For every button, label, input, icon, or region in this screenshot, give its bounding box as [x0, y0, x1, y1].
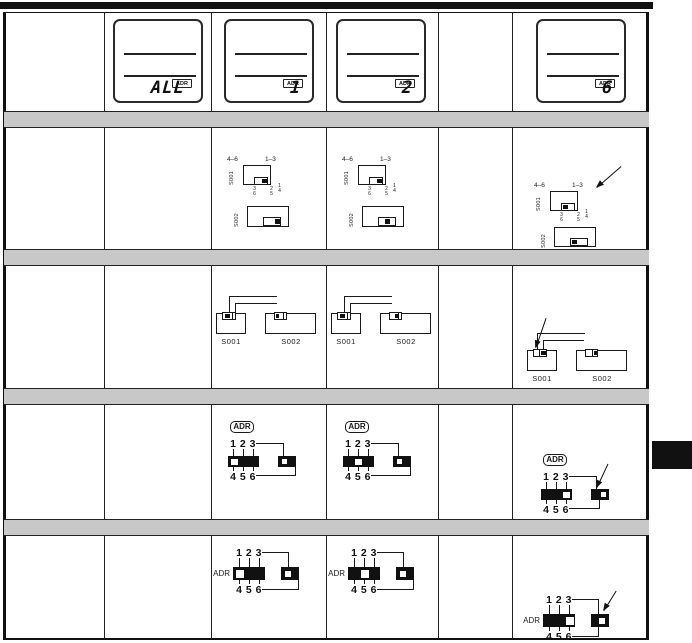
tick: [259, 558, 260, 567]
cell-connector-switch-address-6: S001 S002: [512, 266, 648, 388]
s001-slot: [533, 349, 547, 357]
link-line-6: [413, 580, 414, 589]
pos-bottom: 6: [365, 192, 374, 197]
tick: [358, 449, 359, 456]
pos-bottom: 6: [250, 192, 259, 197]
address-readout: 6: [601, 78, 613, 98]
tick: [556, 482, 557, 489]
address-readout: ALL: [151, 78, 186, 98]
tick: [253, 449, 254, 456]
s001-knob: [262, 179, 267, 183]
s001-slot: [369, 177, 383, 185]
tick: [549, 605, 550, 614]
slider-knob: [360, 569, 370, 579]
tick: [239, 558, 240, 567]
cell-adr-switch-address-6: ADR 1 2 3 4 5 6: [512, 405, 648, 519]
link-line-6: [599, 500, 600, 509]
switch-s002: [265, 313, 316, 334]
address-readout: 1: [289, 78, 301, 98]
s002-position-label: 1 4: [390, 184, 399, 194]
s001-label: S001: [216, 337, 246, 346]
cell-adr-inline-switch-address-2: 1 2 3 ADR 4 5 6: [326, 536, 438, 640]
tick: [249, 558, 250, 567]
s002-label: S002: [584, 374, 620, 383]
range-knob: [396, 458, 403, 465]
lcd-display-1: ADR 1: [224, 19, 314, 103]
row-separator-band: [4, 388, 649, 405]
range-switch: [591, 489, 609, 500]
range-knob: [284, 570, 292, 578]
s002-position-label: 3 6: [365, 187, 374, 197]
link-line-3: [288, 552, 289, 567]
lcd-display-all: ADR ALL: [113, 19, 203, 103]
switch-s002: [576, 350, 627, 371]
adr-badge: ADR: [230, 421, 254, 433]
pointer-arrow-icon: [597, 464, 609, 488]
range-switch: [281, 567, 299, 580]
pos-bottom: 4: [390, 189, 399, 194]
adr-slider: [343, 456, 374, 467]
s001-label: S001: [344, 171, 350, 185]
slot-divider: [283, 313, 284, 319]
s001-label: S001: [536, 197, 542, 211]
link-line-6: [410, 467, 411, 476]
slot-divider: [592, 350, 593, 356]
tick: [566, 482, 567, 489]
s001-range-right-label: 1–3: [380, 156, 391, 163]
s002-slot: [263, 217, 281, 226]
wire-line: [344, 296, 345, 313]
page-edge-tab: [652, 441, 692, 469]
range-knob: [600, 491, 607, 498]
s001-range-left-label: 4–6: [227, 156, 238, 163]
slider-knob: [235, 569, 245, 579]
row-separator-band: [4, 249, 649, 266]
row-separator-band: [4, 519, 649, 536]
adr-label: ADR: [327, 569, 345, 578]
switch-s002: [380, 313, 431, 334]
lcd-display-2: ADR 2: [336, 19, 426, 103]
s001-knob: [563, 205, 568, 209]
slider-knob: [565, 616, 575, 626]
address-readout: 2: [401, 78, 413, 98]
link-line-3: [377, 552, 404, 553]
range-switch: [393, 456, 411, 467]
lcd-segment-line: [235, 53, 307, 55]
tick: [348, 449, 349, 456]
link-line-3: [283, 443, 284, 456]
pos-bottom: 4: [275, 189, 284, 194]
pos-bottom: 4: [582, 215, 591, 220]
manual-page: ADR ALL ADR 1 ADR 2 ADR 6 4–6 1–3 S001 3…: [0, 0, 692, 643]
link-line-3: [398, 443, 399, 456]
numbers-bottom: 4 5 6: [543, 631, 575, 643]
link-line-6: [572, 636, 599, 637]
wire-line: [235, 303, 277, 304]
s001-knob: [377, 179, 382, 183]
s002-label: S002: [273, 337, 309, 346]
s002-slot: [378, 217, 396, 226]
link-line-3: [572, 599, 599, 600]
adr-slider: [541, 489, 572, 500]
s002-position-label: 1 4: [275, 184, 284, 194]
wire-line: [543, 340, 584, 341]
adr-slider: [543, 614, 575, 627]
s002-slot: [585, 349, 598, 357]
tick: [374, 558, 375, 567]
s001-slot: [222, 312, 236, 320]
s001-knob: [541, 351, 546, 355]
slider-knob: [354, 458, 363, 466]
numbers-bottom: 4 5 6: [540, 504, 572, 516]
lcd-segment-line: [547, 75, 619, 77]
lcd-segment-line: [124, 75, 196, 77]
pointer-arrow-icon: [597, 166, 622, 188]
link-line-3: [598, 599, 599, 614]
top-rule: [0, 2, 653, 9]
slider-knob: [562, 491, 571, 499]
link-line-3: [403, 552, 404, 567]
adr-badge: ADR: [345, 421, 369, 433]
wire-line: [344, 296, 392, 297]
link-line-6: [295, 467, 296, 476]
numbers-bottom: 4 5 6: [348, 584, 380, 596]
link-line-3: [256, 443, 284, 444]
cell-connector-switch-address-1: S001 S002: [211, 266, 326, 388]
range-knob: [399, 570, 407, 578]
s001-knob: [225, 314, 230, 318]
tick: [559, 605, 560, 614]
link-line-6: [371, 475, 411, 476]
link-line-6: [256, 475, 296, 476]
range-switch: [396, 567, 414, 580]
adr-badge: ADR: [543, 454, 567, 466]
tick: [243, 449, 244, 456]
tick: [546, 482, 547, 489]
cell-slide-switch-address-6: 4–6 1–3 S001 3 6 2 5 1 4 S002: [512, 128, 648, 249]
lcd-segment-line: [347, 53, 419, 55]
column-divider: [104, 13, 105, 638]
range-knob: [281, 458, 288, 465]
s002-knob: [275, 219, 280, 224]
cell-connector-switch-address-2: S001 S002: [326, 266, 438, 388]
s001-slot: [561, 203, 575, 211]
slot-divider: [539, 350, 540, 356]
pos-bottom: 6: [557, 218, 566, 223]
link-line-3: [569, 476, 597, 477]
slot-divider: [398, 313, 399, 319]
cell-slide-switch-address-2: 4–6 1–3 S001 3 6 2 5 1 4 S002: [326, 128, 438, 249]
s001-slot: [337, 312, 351, 320]
s002-knob: [594, 351, 597, 355]
pointer-arrow-icon: [604, 591, 617, 611]
cell-adr-inline-switch-address-1: 1 2 3 ADR 4 5 6: [211, 536, 326, 640]
lcd-segment-line: [124, 53, 196, 55]
s001-range-right-label: 1–3: [572, 182, 583, 189]
tick: [364, 558, 365, 567]
s002-position-label: 3 6: [557, 213, 566, 223]
numbers-bottom: 4 5 6: [342, 471, 374, 483]
lcd-segment-line: [547, 53, 619, 55]
s002-position-label: 1 4: [582, 210, 591, 220]
s001-label: S001: [229, 171, 235, 185]
s002-position-label: 3 6: [250, 187, 259, 197]
s002-label: S002: [541, 234, 547, 248]
column-divider: [438, 13, 439, 638]
s002-label: S002: [388, 337, 424, 346]
link-line-6: [569, 508, 600, 509]
range-knob: [598, 617, 606, 625]
adr-label: ADR: [522, 616, 540, 625]
lcd-display-6: ADR 6: [536, 19, 626, 103]
numbers-bottom: 4 5 6: [233, 584, 265, 596]
s001-range-left-label: 4–6: [342, 156, 353, 163]
wire-line: [350, 303, 392, 304]
s002-knob: [572, 240, 577, 244]
lcd-segment-line: [235, 75, 307, 77]
adr-slider: [228, 456, 259, 467]
s002-knob: [276, 314, 279, 318]
adr-slider: [233, 567, 265, 580]
numbers-bottom: 4 5 6: [227, 471, 259, 483]
tick: [354, 558, 355, 567]
wire-line: [229, 296, 277, 297]
s001-range-right-label: 1–3: [265, 156, 276, 163]
wire-line: [537, 333, 585, 334]
s001-knob: [340, 314, 345, 318]
s002-label: S002: [349, 213, 355, 227]
s002-slot: [570, 238, 588, 246]
slider-knob: [230, 458, 239, 466]
wire-line: [229, 296, 230, 313]
link-line-3: [371, 443, 399, 444]
s001-slot: [254, 177, 268, 185]
s001-label: S001: [527, 374, 557, 383]
link-line-6: [262, 589, 299, 590]
cell-adr-switch-address-2: ADR 1 2 3 4 5 6: [326, 405, 438, 519]
link-line-6: [298, 580, 299, 589]
slot-divider: [232, 313, 233, 319]
s001-label: S001: [331, 337, 361, 346]
slot-divider: [347, 313, 348, 319]
range-switch: [591, 614, 609, 627]
adr-slider: [348, 567, 380, 580]
tick: [569, 605, 570, 614]
s002-label: S002: [234, 213, 240, 227]
cell-adr-switch-address-1: ADR 1 2 3 4 5 6: [211, 405, 326, 519]
adr-label: ADR: [212, 569, 230, 578]
s002-slot: [389, 312, 402, 320]
link-line-6: [377, 589, 414, 590]
range-switch: [278, 456, 296, 467]
link-line-3: [262, 552, 289, 553]
cell-slide-switch-address-1: 4–6 1–3 S001 3 6 2 5 1 4 S002: [211, 128, 326, 249]
tick: [368, 449, 369, 456]
s002-knob: [385, 219, 390, 224]
lcd-segment-line: [347, 75, 419, 77]
s002-slot: [274, 312, 287, 320]
tick: [233, 449, 234, 456]
cell-adr-inline-switch-address-6: 1 2 3 ADR 4 5 6: [512, 536, 648, 640]
s001-range-left-label: 4–6: [534, 182, 545, 189]
row-separator-band: [4, 111, 649, 128]
link-line-6: [598, 627, 599, 636]
